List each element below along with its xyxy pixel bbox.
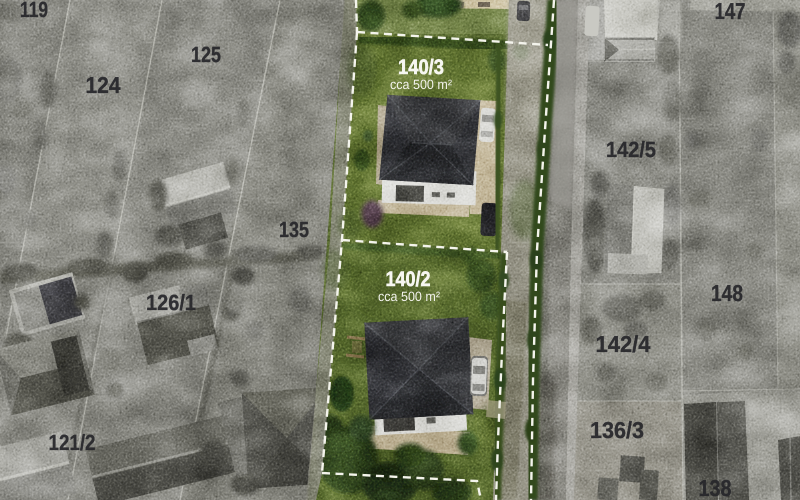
- svg-text:126/1: 126/1: [146, 290, 196, 315]
- svg-text:124: 124: [86, 72, 121, 98]
- svg-text:cca 500 m²: cca 500 m²: [390, 77, 452, 92]
- svg-text:119: 119: [20, 0, 48, 22]
- svg-text:140/3: 140/3: [398, 56, 444, 79]
- svg-text:148: 148: [711, 280, 743, 306]
- svg-text:147: 147: [715, 0, 746, 24]
- svg-text:cca 500 m²: cca 500 m²: [378, 289, 440, 304]
- svg-text:142/4: 142/4: [596, 331, 651, 357]
- svg-text:135: 135: [279, 217, 309, 242]
- svg-text:125: 125: [191, 42, 221, 67]
- svg-text:138: 138: [699, 475, 732, 500]
- svg-text:142/5: 142/5: [606, 137, 656, 162]
- svg-text:136/3: 136/3: [590, 417, 644, 443]
- svg-text:140/2: 140/2: [386, 268, 431, 291]
- svg-text:121/2: 121/2: [49, 430, 96, 455]
